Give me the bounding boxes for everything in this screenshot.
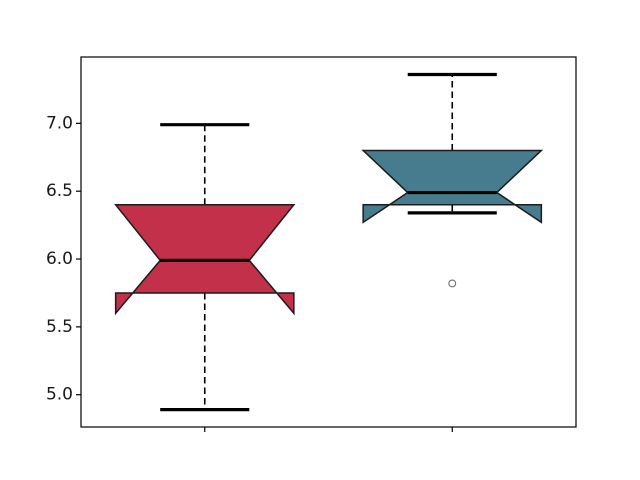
y-tick-label: 6.5 (46, 181, 73, 201)
y-tick-label: 5.5 (46, 317, 73, 337)
y-tick-label: 5.0 (46, 385, 73, 405)
boxplot-svg: 7.06.56.05.55.0 (0, 0, 640, 480)
figure-canvas: 7.06.56.05.55.0 (0, 0, 640, 480)
y-tick-label: 7.0 (46, 113, 73, 133)
y-tick-label: 6.0 (46, 249, 73, 269)
